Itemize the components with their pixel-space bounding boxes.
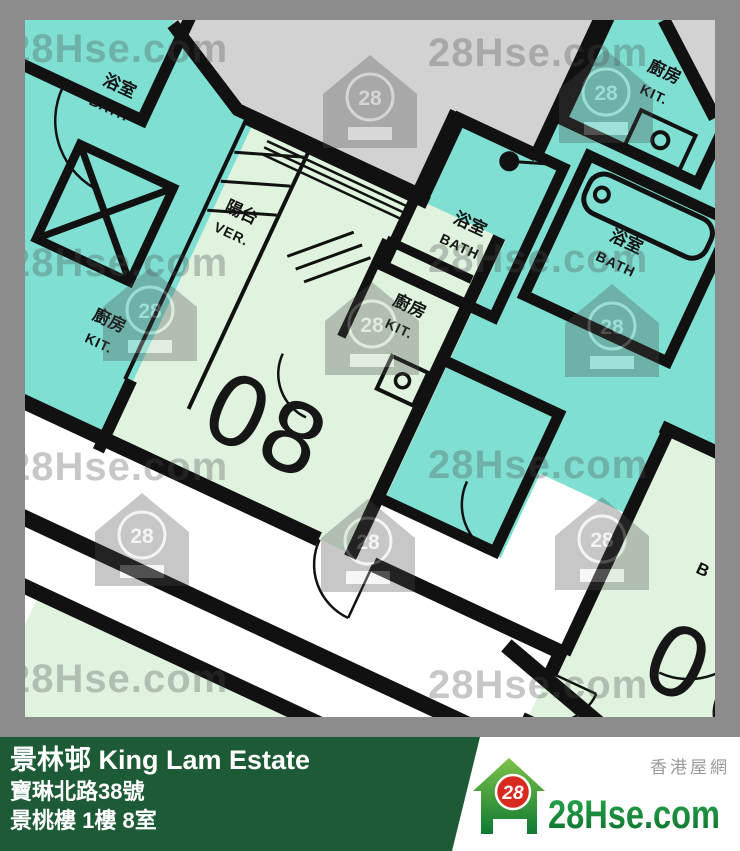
floorplan-page: 28 — [0, 0, 740, 851]
watermark-text: 28Hse.com — [8, 445, 228, 489]
watermark-text: 28Hse.com — [8, 27, 228, 71]
logo-number: 28 — [501, 783, 524, 804]
brand-site-name: 28Hse.com — [548, 793, 720, 837]
watermark-text: 28Hse.com — [428, 663, 648, 707]
logo-house-door — [493, 819, 527, 834]
floorplan-svg: 28 — [0, 0, 740, 737]
brand-logo: 28 28Hse.com 香港屋網 — [452, 740, 740, 846]
watermark-text: 28Hse.com — [8, 657, 228, 701]
floorplan-image: 28 — [0, 0, 740, 737]
watermark-text: 28Hse.com — [428, 237, 648, 281]
watermark-text: 28Hse.com — [8, 241, 228, 285]
brand-tagline: 香港屋網 — [650, 758, 730, 777]
watermark-text: 28Hse.com — [428, 443, 648, 487]
